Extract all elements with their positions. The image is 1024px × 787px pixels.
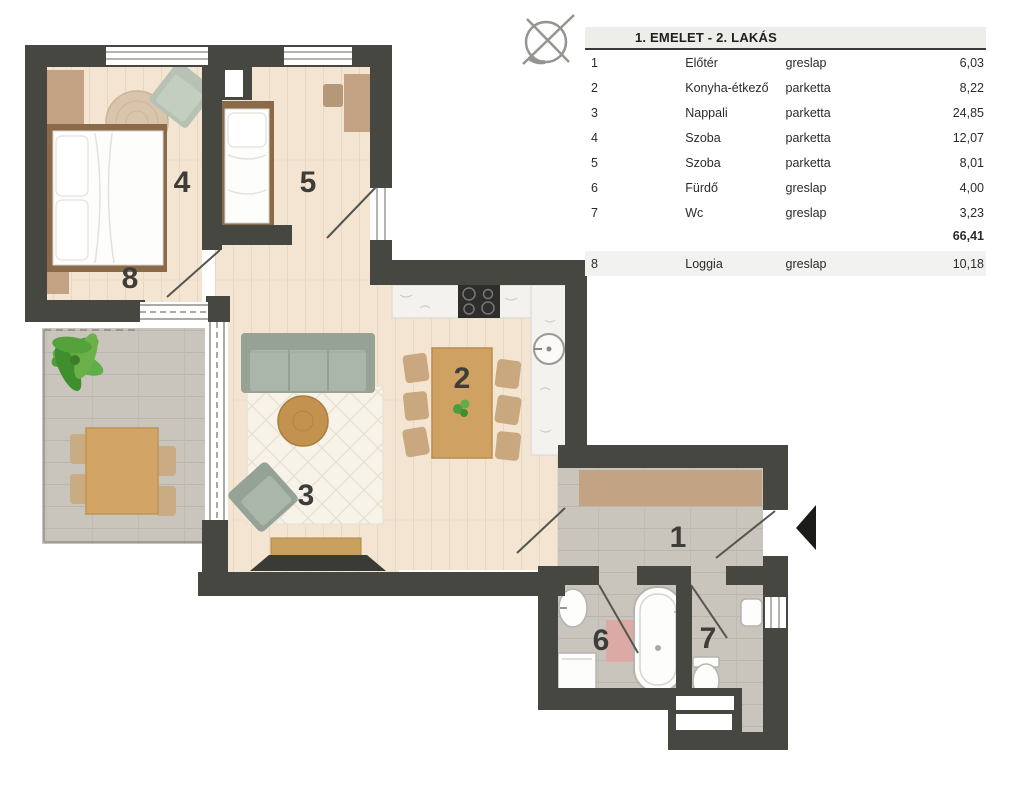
bathtub-icon: [634, 587, 682, 692]
desk-chair: [323, 84, 343, 107]
tv-console: [271, 538, 361, 556]
legend-row: 3 Nappali parketta 24,85: [585, 100, 986, 125]
loggia-chair: [156, 446, 176, 476]
shaft: [225, 70, 243, 97]
sliding-door: [140, 302, 208, 322]
cooktop: [458, 285, 500, 318]
legend-table: 1. EMELET - 2. LAKÁS 1 Előtér greslap 6,…: [585, 27, 986, 276]
glass-wall: [206, 322, 228, 520]
french-window: [370, 188, 392, 240]
window: [284, 47, 352, 65]
wc-window: [765, 597, 786, 628]
kitchen-counter-right: [531, 285, 568, 455]
room-label-living: 3: [298, 479, 315, 512]
hall-wardrobe: [579, 470, 762, 506]
entrance-arrow: [796, 505, 816, 550]
legend-row: 7 Wc greslap 3,23: [585, 200, 986, 225]
room-label-bedroom1: 4: [174, 166, 191, 199]
legend-total-row: 66,41: [585, 225, 986, 247]
pillow: [56, 136, 88, 196]
sink-icon: [534, 334, 564, 364]
single-bed: [220, 101, 274, 231]
sofa: [241, 333, 375, 393]
niche: [676, 714, 732, 730]
coffee-table: [278, 396, 328, 446]
loggia-table: [86, 428, 158, 514]
kitchen-dining: [392, 285, 568, 461]
compass-icon: [523, 15, 574, 64]
room-label-wc: 7: [700, 622, 717, 655]
pillow: [228, 113, 266, 147]
double-bed: [46, 124, 167, 272]
legend-row: 6 Fürdő greslap 4,00: [585, 175, 986, 200]
legend-row: 1 Előtér greslap 6,03: [585, 49, 986, 75]
room-label-kitchen: 2: [454, 362, 471, 395]
room-label-bath: 6: [593, 624, 610, 657]
pillow: [56, 200, 88, 260]
legend-total-value: 66,41: [886, 225, 986, 247]
tv: [250, 555, 386, 571]
window: [106, 47, 208, 65]
legend-row: 2 Konyha-étkező parketta 8,22: [585, 75, 986, 100]
room-label-bedroom2: 5: [300, 166, 317, 199]
legend-row: 4 Szoba parketta 12,07: [585, 125, 986, 150]
legend-row: 5 Szoba parketta 8,01: [585, 150, 986, 175]
legend-title: 1. EMELET - 2. LAKÁS: [585, 27, 986, 49]
legend-loggia-row: 8 Loggia greslap 10,18: [585, 251, 986, 276]
floorplan-page: 1 2 3 4 5 6 7 8 1. EMELET - 2. LAKÁS 1 E…: [0, 0, 1024, 787]
legend-title-row: 1. EMELET - 2. LAKÁS: [585, 27, 986, 49]
hall-room: [579, 470, 762, 506]
loggia-chair: [156, 486, 176, 516]
room-label-loggia: 8: [122, 262, 139, 295]
niche: [676, 696, 734, 710]
wc-sink-icon: [741, 599, 762, 626]
room-label-hall: 1: [670, 521, 687, 554]
